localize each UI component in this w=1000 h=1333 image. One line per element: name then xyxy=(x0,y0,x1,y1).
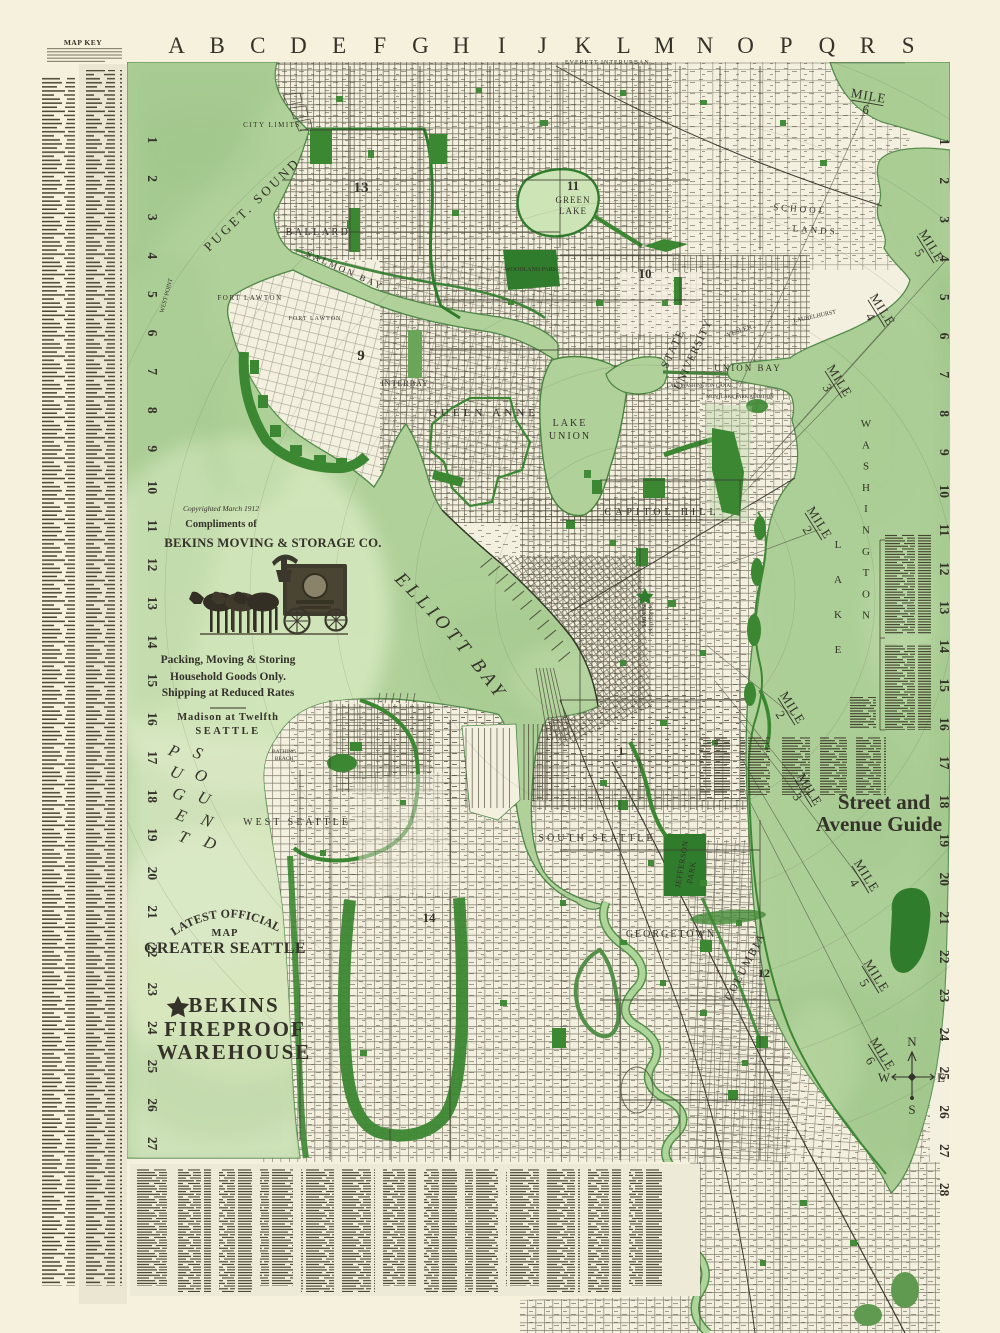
svg-text:6: 6 xyxy=(145,330,160,337)
svg-text:UNION: UNION xyxy=(549,431,591,442)
svg-text:BEKINS MOVING & STORAGE CO.: BEKINS MOVING & STORAGE CO. xyxy=(164,536,381,550)
svg-text:FORT LAWTON: FORT LAWTON xyxy=(289,316,342,322)
svg-text:S: S xyxy=(902,33,915,58)
svg-text:4: 4 xyxy=(145,252,160,259)
svg-text:5: 5 xyxy=(145,291,160,298)
svg-text:14: 14 xyxy=(423,910,437,925)
svg-text:GEORGETOWN: GEORGETOWN xyxy=(626,929,716,940)
svg-text:Street and: Street and xyxy=(838,790,931,814)
svg-text:SEATTLE: SEATTLE xyxy=(195,726,260,737)
svg-text:BALLARD: BALLARD xyxy=(286,227,351,238)
svg-text:7: 7 xyxy=(937,371,952,378)
svg-text:2: 2 xyxy=(145,175,160,182)
svg-text:QUEEN ANNE: QUEEN ANNE xyxy=(429,407,539,419)
svg-text:K: K xyxy=(575,33,592,58)
svg-text:I: I xyxy=(498,33,506,58)
svg-text:2: 2 xyxy=(937,177,952,184)
svg-text:Packing, Moving & Storing: Packing, Moving & Storing xyxy=(161,654,296,666)
svg-text:C: C xyxy=(250,33,265,58)
svg-text:12: 12 xyxy=(758,966,770,980)
svg-text:CAPITOL HILL: CAPITOL HILL xyxy=(605,507,720,518)
svg-text:O: O xyxy=(737,33,754,58)
svg-text:Household Goods Only.: Household Goods Only. xyxy=(170,671,286,683)
svg-text:6: 6 xyxy=(937,333,952,340)
svg-text:W: W xyxy=(861,418,872,430)
svg-text:8: 8 xyxy=(937,410,952,417)
svg-text:WAREHOUSE: WAREHOUSE xyxy=(647,604,652,635)
svg-text:O: O xyxy=(862,588,870,600)
svg-text:L: L xyxy=(617,33,631,58)
svg-text:18: 18 xyxy=(145,789,160,803)
svg-text:FORT LAWTON: FORT LAWTON xyxy=(217,294,282,302)
svg-text:5: 5 xyxy=(937,294,952,301)
svg-text:1: 1 xyxy=(145,137,160,144)
svg-text:12: 12 xyxy=(937,562,952,576)
svg-text:22: 22 xyxy=(937,950,952,964)
svg-text:9: 9 xyxy=(357,348,365,364)
svg-text:WOODLAND PARK: WOODLAND PARK xyxy=(505,267,558,273)
svg-text:13: 13 xyxy=(145,596,160,610)
svg-text:11: 11 xyxy=(145,520,160,533)
svg-text:H: H xyxy=(453,33,470,58)
svg-text:WEST SEATTLE: WEST SEATTLE xyxy=(243,817,351,828)
svg-text:23: 23 xyxy=(937,989,952,1003)
svg-text:14: 14 xyxy=(145,635,160,649)
svg-text:10: 10 xyxy=(937,484,952,498)
svg-text:27: 27 xyxy=(937,1144,952,1158)
svg-text:MAP KEY: MAP KEY xyxy=(64,38,102,47)
svg-text:28: 28 xyxy=(937,1183,952,1197)
svg-text:A: A xyxy=(834,574,842,586)
svg-text:SOUTH SEATTLE: SOUTH SEATTLE xyxy=(538,833,655,844)
svg-text:20: 20 xyxy=(145,867,160,881)
svg-text:13: 13 xyxy=(937,601,952,615)
svg-text:19: 19 xyxy=(145,828,160,842)
svg-text:P: P xyxy=(780,33,793,58)
svg-text:18: 18 xyxy=(937,795,952,809)
svg-text:26: 26 xyxy=(937,1105,952,1119)
svg-text:G: G xyxy=(862,546,870,558)
svg-text:GREEN: GREEN xyxy=(556,195,591,205)
svg-text:WAREHOUSE: WAREHOUSE xyxy=(157,1040,312,1064)
svg-text:26: 26 xyxy=(145,1098,160,1112)
svg-text:10: 10 xyxy=(145,481,160,495)
svg-text:21: 21 xyxy=(145,905,160,919)
svg-text:K: K xyxy=(834,609,842,621)
svg-text:E: E xyxy=(937,1070,945,1085)
svg-text:H: H xyxy=(862,482,870,494)
svg-text:7: 7 xyxy=(145,368,160,375)
svg-text:BEKINS: BEKINS xyxy=(188,993,279,1017)
svg-text:MONTLAKE PARK ADDITION: MONTLAKE PARK ADDITION xyxy=(706,395,774,400)
svg-text:3: 3 xyxy=(145,214,160,221)
svg-text:16: 16 xyxy=(937,717,952,731)
svg-text:N: N xyxy=(862,610,870,622)
svg-text:17: 17 xyxy=(937,756,952,770)
svg-text:N: N xyxy=(697,33,714,58)
svg-text:L: L xyxy=(835,539,842,551)
svg-text:15: 15 xyxy=(937,678,952,692)
svg-text:R: R xyxy=(860,33,876,58)
svg-text:Avenue Guide: Avenue Guide xyxy=(816,812,942,836)
svg-text:17: 17 xyxy=(145,751,160,765)
svg-text:D: D xyxy=(290,33,307,58)
svg-text:S: S xyxy=(908,1102,915,1117)
svg-text:21: 21 xyxy=(937,911,952,925)
svg-text:Madison at Twelfth: Madison at Twelfth xyxy=(177,712,279,723)
svg-text:11: 11 xyxy=(567,178,579,193)
svg-text:1: 1 xyxy=(618,744,624,758)
svg-text:1: 1 xyxy=(937,139,952,146)
svg-text:J: J xyxy=(538,33,547,58)
svg-text:E: E xyxy=(332,33,346,58)
svg-text:W: W xyxy=(878,1070,891,1085)
svg-text:MAP: MAP xyxy=(212,928,239,939)
svg-text:F: F xyxy=(373,33,386,58)
svg-text:8: 8 xyxy=(145,407,160,414)
svg-text:Q: Q xyxy=(819,33,836,58)
svg-text:3: 3 xyxy=(937,216,952,223)
svg-text:9: 9 xyxy=(145,445,160,452)
svg-text:G: G xyxy=(412,33,429,58)
svg-text:INTERBAY: INTERBAY xyxy=(381,379,429,388)
svg-text:23: 23 xyxy=(145,982,160,996)
svg-text:CITY LIMITS: CITY LIMITS xyxy=(243,121,301,129)
svg-text:10: 10 xyxy=(639,266,652,281)
svg-text:13: 13 xyxy=(354,180,369,196)
svg-text:I: I xyxy=(864,503,868,515)
svg-text:14: 14 xyxy=(937,640,952,654)
svg-text:24: 24 xyxy=(937,1028,952,1042)
svg-text:EVERETT INTERURBAN: EVERETT INTERURBAN xyxy=(565,60,650,66)
svg-text:15: 15 xyxy=(145,674,160,688)
svg-text:BATHING: BATHING xyxy=(272,749,296,755)
svg-text:M: M xyxy=(654,33,674,58)
svg-text:UNION BAY: UNION BAY xyxy=(714,363,781,373)
svg-text:N: N xyxy=(907,1034,917,1049)
svg-text:20: 20 xyxy=(937,872,952,886)
svg-text:Copyrighted March 1912: Copyrighted March 1912 xyxy=(183,504,259,513)
svg-text:11: 11 xyxy=(937,524,952,537)
svg-text:FIREPROOF: FIREPROOF xyxy=(164,1017,306,1041)
svg-text:S: S xyxy=(863,461,869,473)
svg-text:BEKINS: BEKINS xyxy=(640,604,646,627)
svg-text:BEACH: BEACH xyxy=(275,756,294,762)
svg-text:B: B xyxy=(210,33,225,58)
svg-text:16: 16 xyxy=(145,712,160,726)
svg-text:N: N xyxy=(862,525,870,537)
svg-text:LAKE WASHINGTON CANAL: LAKE WASHINGTON CANAL xyxy=(667,384,733,389)
svg-text:Compliments of: Compliments of xyxy=(185,519,257,530)
svg-text:GREATER SEATTLE: GREATER SEATTLE xyxy=(144,940,306,957)
svg-text:Shipping at Reduced Rates: Shipping at Reduced Rates xyxy=(162,687,295,699)
svg-text:A: A xyxy=(862,439,870,451)
svg-text:E: E xyxy=(835,644,842,656)
svg-text:T: T xyxy=(863,567,870,579)
svg-text:24: 24 xyxy=(145,1021,160,1035)
svg-text:12: 12 xyxy=(145,558,160,572)
svg-text:LAKE: LAKE xyxy=(553,418,588,429)
svg-text:27: 27 xyxy=(145,1137,160,1151)
svg-text:A: A xyxy=(168,33,185,58)
svg-text:9: 9 xyxy=(937,449,952,456)
svg-text:LAKE: LAKE xyxy=(559,206,587,216)
